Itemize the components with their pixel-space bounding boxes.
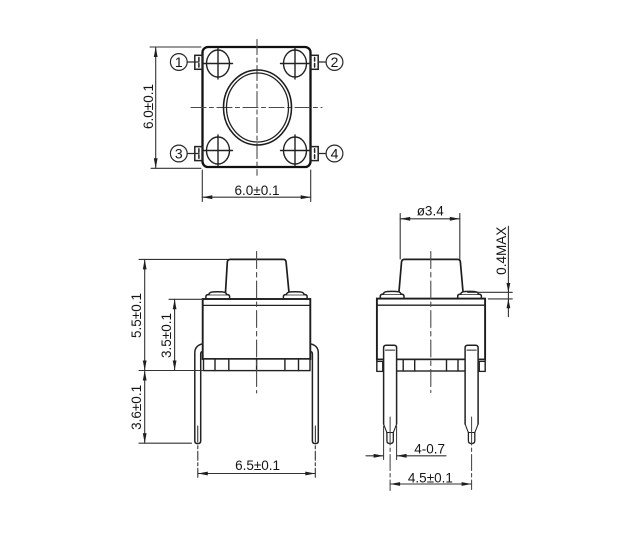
svg-text:6.0±0.1: 6.0±0.1 — [141, 84, 156, 129]
svg-text:2: 2 — [331, 54, 339, 70]
svg-text:ø3.4: ø3.4 — [417, 204, 445, 219]
svg-text:4: 4 — [331, 146, 339, 162]
svg-text:5.5±0.1: 5.5±0.1 — [129, 293, 144, 338]
svg-text:1: 1 — [175, 54, 183, 70]
svg-text:4-0.7: 4-0.7 — [414, 442, 445, 457]
svg-text:0.4MAX: 0.4MAX — [494, 227, 509, 275]
svg-text:3.5±0.1: 3.5±0.1 — [159, 313, 174, 358]
svg-text:6.0±0.1: 6.0±0.1 — [235, 183, 280, 198]
svg-text:6.5±0.1: 6.5±0.1 — [235, 458, 280, 473]
svg-text:4.5±0.1: 4.5±0.1 — [408, 471, 453, 486]
svg-text:3.6±0.1: 3.6±0.1 — [129, 385, 144, 430]
svg-text:3: 3 — [175, 146, 183, 162]
